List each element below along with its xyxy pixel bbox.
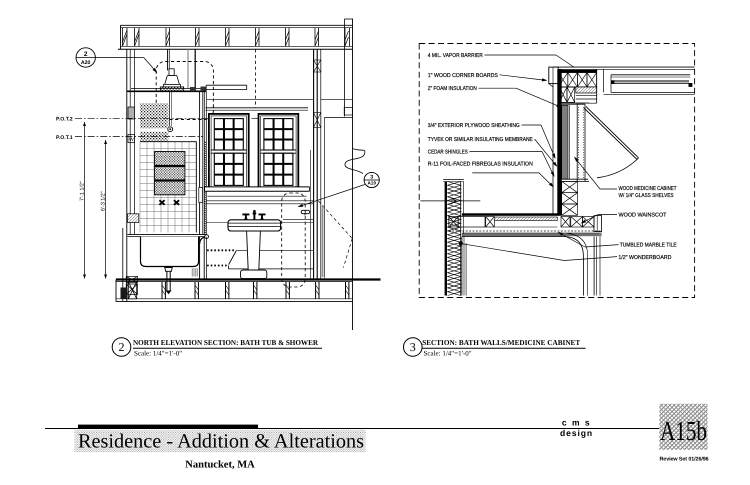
svg-text:Scale: 1/4"=1'-0": Scale: 1/4"=1'-0" [134,350,182,358]
svg-text:6'-3 1/2": 6'-3 1/2" [101,191,107,211]
svg-text:7'-1 1/2": 7'-1 1/2" [80,181,86,201]
svg-text:Scale: 1/4"=1'-0": Scale: 1/4"=1'-0" [424,350,472,358]
svg-text:Nantucket, MA: Nantucket, MA [185,460,255,471]
svg-text:TYVEK OR SIMILAR INSULATING ME: TYVEK OR SIMILAR INSULATING MEMBRANE [428,137,533,143]
svg-text:R-11 FOIL-FACED FIBREGLAS INSU: R-11 FOIL-FACED FIBREGLAS INSULATION [428,162,533,168]
svg-text:3: 3 [410,340,416,354]
svg-text:4 MIL. VAPOR BARRIER: 4 MIL. VAPOR BARRIER [428,53,483,59]
svg-text:1" WOOD CORNER BOARDS: 1" WOOD CORNER BOARDS [428,73,498,79]
svg-text:Review Set 01/26/96: Review Set 01/26/96 [660,457,709,463]
svg-text:design: design [560,428,593,438]
svg-text:W: W [129,137,134,143]
svg-text:1/2" WONDERBOARD: 1/2" WONDERBOARD [618,254,671,261]
svg-text:2" FOAM INSULATION: 2" FOAM INSULATION [428,86,477,92]
svg-text:2: 2 [84,51,88,58]
svg-text:A20: A20 [81,60,91,66]
svg-text:Residence - Addition & Alterat: Residence - Addition & Alterations [78,431,364,453]
svg-text:SECTION: BATH WALLS/MEDICINE C: SECTION: BATH WALLS/MEDICINE CABINET [422,338,580,347]
svg-text:WOOD MEDICINE CABINET: WOOD MEDICINE CABINET [619,186,677,192]
svg-text:CEDAR SHINGLES: CEDAR SHINGLES [428,150,468,156]
svg-text:A15b: A15b [660,415,707,446]
svg-text:c m s: c m s [562,418,591,428]
svg-text:3/4" EXTERIOR PLYWOOD SHEATHIN: 3/4" EXTERIOR PLYWOOD SHEATHING [428,122,520,129]
svg-text:TUMBLED MARBLE TILE: TUMBLED MARBLE TILE [620,243,677,249]
svg-text:P.O.T.1: P.O.T.1 [56,135,73,141]
svg-text:2: 2 [119,340,125,354]
svg-text:WOOD WAINSCOT: WOOD WAINSCOT [619,213,668,219]
svg-text:A19: A19 [367,180,376,185]
svg-text:P.O.T.2: P.O.T.2 [56,116,73,122]
svg-text:W/ 1/4" GLASS SHELVES: W/ 1/4" GLASS SHELVES [619,192,674,199]
svg-text:NORTH ELEVATION SECTION: BAT: NORTH ELEVATION SECTION: BATH TUB & SHOW… [133,338,319,347]
